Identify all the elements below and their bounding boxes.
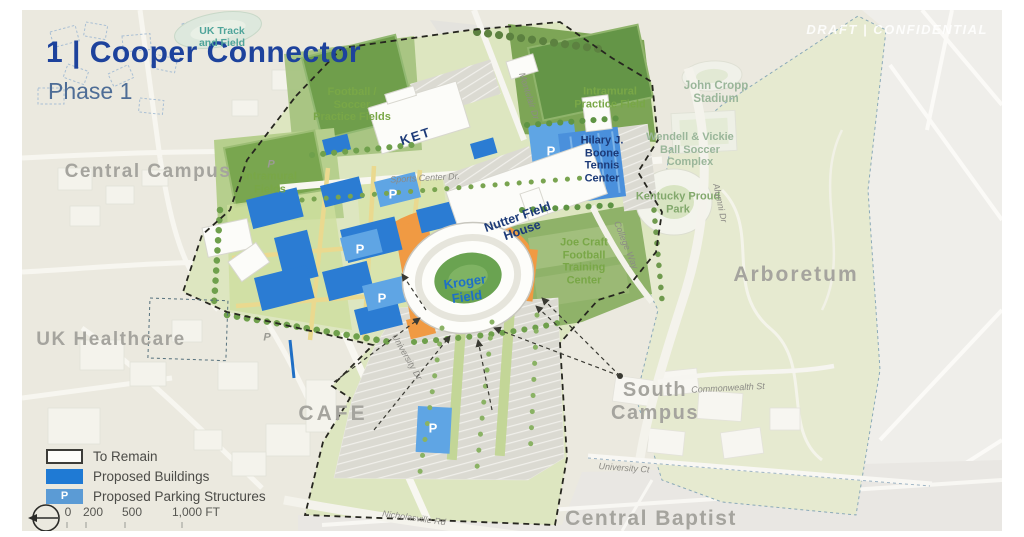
draft-watermark: DRAFT | CONFIDENTIAL — [806, 22, 988, 37]
legend-swatch-to-remain — [46, 449, 83, 464]
arrow-origin-node — [617, 373, 623, 379]
campus-map: 1 | Cooper Connector Phase 1 DRAFT | CON… — [22, 10, 1002, 531]
master-plan-slide: 1 | Cooper Connector Phase 1 DRAFT | CON… — [0, 0, 1024, 537]
page-title: 1 | Cooper Connector — [46, 36, 361, 70]
legend-label: Proposed Parking Structures — [93, 489, 266, 504]
legend-row-parking-structures: P Proposed Parking Structures — [46, 486, 266, 506]
legend-label: To Remain — [93, 449, 158, 464]
scale-tick: 0 — [65, 505, 72, 519]
legend-label: Proposed Buildings — [93, 469, 209, 484]
scale-tick: 200 — [83, 505, 103, 519]
legend-swatch-proposed-buildings — [46, 469, 83, 484]
legend-swatch-parking-structures: P — [46, 489, 83, 504]
map-legend: To Remain Proposed Buildings P Proposed … — [46, 446, 266, 506]
scale-tick: 1,000 FT — [172, 505, 220, 519]
page-subtitle: Phase 1 — [48, 78, 132, 105]
legend-row-proposed-buildings: Proposed Buildings — [46, 466, 266, 486]
scale-tick: 500 — [122, 505, 142, 519]
legend-row-to-remain: To Remain — [46, 446, 266, 466]
